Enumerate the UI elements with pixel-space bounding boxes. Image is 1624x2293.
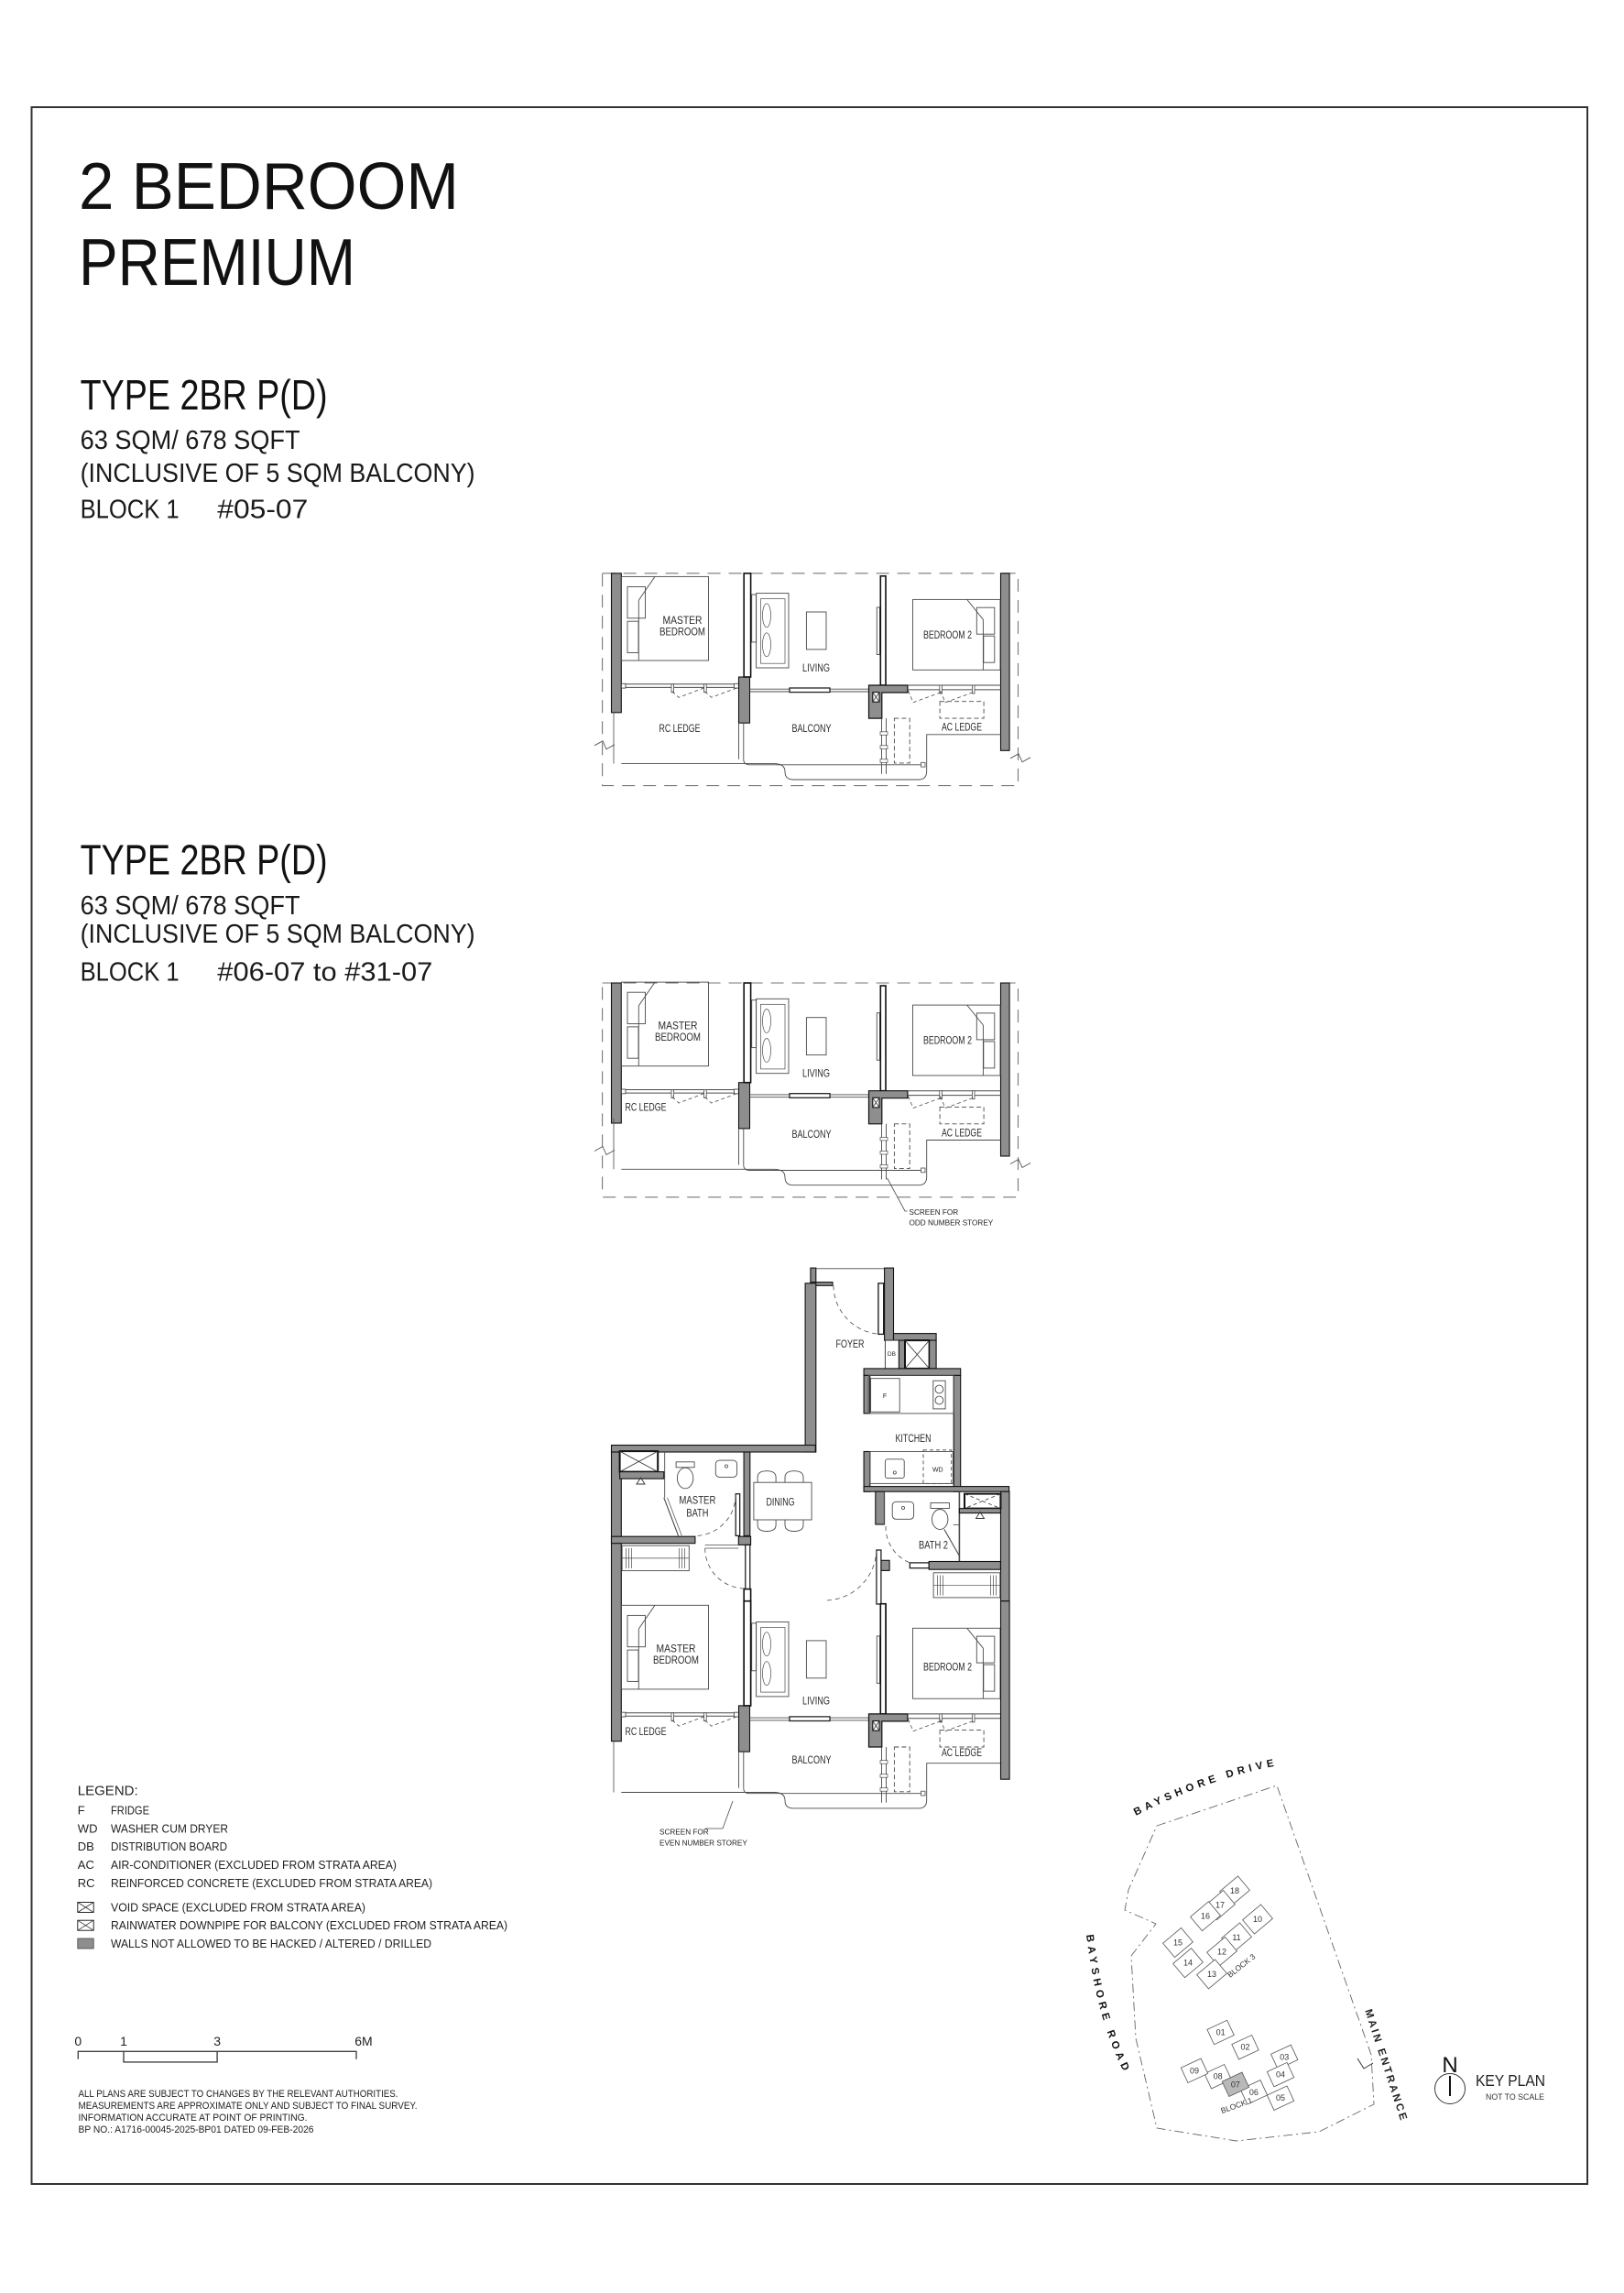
svg-text:63 SQM/ 678 SQFT: 63 SQM/ 678 SQFT <box>81 891 300 921</box>
svg-text:2 BEDROOM: 2 BEDROOM <box>79 150 459 224</box>
svg-text:FRIDGE: FRIDGE <box>111 1803 149 1817</box>
svg-text:3: 3 <box>213 2034 221 2048</box>
svg-text:06: 06 <box>1249 2088 1259 2097</box>
svg-text:13: 13 <box>1207 1970 1216 1979</box>
svg-text:TYPE 2BR P(D): TYPE 2BR P(D) <box>81 371 328 419</box>
svg-text:AC LEDGE: AC LEDGE <box>942 1127 982 1140</box>
svg-text:TYPE 2BR P(D): TYPE 2BR P(D) <box>81 835 328 883</box>
svg-text:AC: AC <box>78 1858 94 1872</box>
svg-text:11: 11 <box>1232 1933 1240 1942</box>
svg-text:10: 10 <box>1253 1915 1262 1924</box>
svg-text:BALCONY: BALCONY <box>792 1128 832 1141</box>
svg-text:ODD NUMBER STOREY: ODD NUMBER STOREY <box>910 1219 994 1228</box>
svg-text:MEASUREMENTS ARE APPROXIMATE O: MEASUREMENTS ARE APPROXIMATE ONLY AND SU… <box>79 2101 418 2112</box>
svg-text:12: 12 <box>1217 1948 1226 1957</box>
svg-text:REINFORCED CONCRETE (EXCLUDED: REINFORCED CONCRETE (EXCLUDED FROM STRAT… <box>111 1876 432 1890</box>
svg-text:DB: DB <box>78 1840 94 1853</box>
svg-text:LIVING: LIVING <box>802 1695 830 1708</box>
svg-text:(INCLUSIVE OF 5 SQM BALCONY): (INCLUSIVE OF 5 SQM BALCONY) <box>81 459 475 488</box>
svg-text:BEDROOM 2: BEDROOM 2 <box>923 1661 972 1674</box>
svg-text:BEDROOM: BEDROOM <box>659 625 705 638</box>
svg-text:08: 08 <box>1214 2072 1223 2081</box>
svg-text:BEDROOM: BEDROOM <box>655 1031 701 1043</box>
svg-text:03: 03 <box>1280 2052 1289 2061</box>
svg-text:WD: WD <box>78 1821 98 1835</box>
svg-text:01: 01 <box>1216 2028 1226 2037</box>
svg-text:1: 1 <box>120 2034 127 2048</box>
svg-text:BLOCK 1: BLOCK 1 <box>81 958 180 988</box>
svg-text:VOID SPACE (EXCLUDED FROM STRA: VOID SPACE (EXCLUDED FROM STRATA AREA) <box>111 1901 365 1915</box>
svg-text:BALCONY: BALCONY <box>792 722 832 735</box>
svg-text:WALLS NOT ALLOWED TO BE HACKED: WALLS NOT ALLOWED TO BE HACKED / ALTERED… <box>111 1937 431 1950</box>
svg-text:AC LEDGE: AC LEDGE <box>942 1746 982 1759</box>
svg-text:ALL PLANS ARE SUBJECT TO CHANG: ALL PLANS ARE SUBJECT TO CHANGES BY THE … <box>79 2089 398 2100</box>
svg-text:KITCHEN: KITCHEN <box>896 1432 932 1445</box>
svg-text:SCREEN FOR: SCREEN FOR <box>659 1829 709 1837</box>
svg-text:02: 02 <box>1240 2043 1249 2052</box>
svg-text:17: 17 <box>1215 1901 1225 1910</box>
svg-text:AC LEDGE: AC LEDGE <box>942 721 982 734</box>
svg-text:DINING: DINING <box>767 1496 795 1509</box>
svg-text:63 SQM/ 678 SQFT: 63 SQM/ 678 SQFT <box>81 426 300 455</box>
svg-text:NOT TO SCALE: NOT TO SCALE <box>1486 2092 1544 2102</box>
svg-text:DISTRIBUTION BOARD: DISTRIBUTION BOARD <box>111 1840 227 1853</box>
svg-text:14: 14 <box>1183 1959 1193 1968</box>
svg-text:BATH 2: BATH 2 <box>919 1539 948 1552</box>
svg-text:04: 04 <box>1276 2070 1285 2080</box>
svg-text:LIVING: LIVING <box>802 661 830 674</box>
svg-text:WD: WD <box>932 1468 943 1474</box>
svg-text:EVEN NUMBER STOREY: EVEN NUMBER STOREY <box>659 1840 747 1848</box>
svg-text:0: 0 <box>74 2034 82 2048</box>
svg-text:LEGEND:: LEGEND: <box>78 1783 138 1798</box>
svg-text:PREMIUM: PREMIUM <box>79 226 355 300</box>
svg-text:BALCONY: BALCONY <box>792 1753 832 1766</box>
svg-text:AIR-CONDITIONER (EXCLUDED FROM: AIR-CONDITIONER (EXCLUDED FROM STRATA AR… <box>111 1858 397 1872</box>
svg-text:07: 07 <box>1231 2080 1240 2089</box>
svg-text:BEDROOM 2: BEDROOM 2 <box>923 1034 972 1047</box>
svg-text:RAINWATER DOWNPIPE FOR BALCONY: RAINWATER DOWNPIPE FOR BALCONY (EXCLUDED… <box>111 1918 507 1932</box>
svg-text:09: 09 <box>1190 2066 1199 2075</box>
svg-text:MASTER: MASTER <box>679 1494 715 1507</box>
svg-text:KEY PLAN: KEY PLAN <box>1476 2071 1545 2090</box>
svg-text:15: 15 <box>1173 1938 1183 1948</box>
svg-text:BP NO.: A1716-00045-2025-BP01: BP NO.: A1716-00045-2025-BP01 DATED 09-F… <box>79 2124 314 2135</box>
svg-text:BEDROOM 2: BEDROOM 2 <box>923 628 972 641</box>
svg-text:6M: 6M <box>354 2034 372 2048</box>
svg-text:LIVING: LIVING <box>802 1067 830 1080</box>
svg-text:SCREEN FOR: SCREEN FOR <box>910 1208 959 1217</box>
svg-text:#06-07 to #31-07: #06-07 to #31-07 <box>217 958 432 988</box>
svg-text:FOYER: FOYER <box>836 1338 865 1350</box>
svg-text:BLOCK 1: BLOCK 1 <box>81 496 180 525</box>
svg-text:RC LEDGE: RC LEDGE <box>626 1725 667 1738</box>
svg-text:#05-07: #05-07 <box>217 496 308 525</box>
svg-text:16: 16 <box>1201 1912 1210 1921</box>
svg-text:F: F <box>78 1803 85 1817</box>
svg-text:BEDROOM: BEDROOM <box>653 1654 699 1666</box>
svg-text:INFORMATION ACCURATE AT POINT: INFORMATION ACCURATE AT POINT OF PRINTIN… <box>79 2113 308 2124</box>
svg-text:N: N <box>1442 2053 1457 2078</box>
svg-text:(INCLUSIVE OF 5 SQM BALCONY): (INCLUSIVE OF 5 SQM BALCONY) <box>81 920 475 949</box>
svg-text:WASHER CUM DRYER: WASHER CUM DRYER <box>111 1821 228 1835</box>
svg-text:RC LEDGE: RC LEDGE <box>626 1101 667 1114</box>
svg-text:BATH: BATH <box>686 1507 708 1520</box>
svg-text:F: F <box>883 1393 887 1400</box>
svg-text:05: 05 <box>1276 2093 1285 2102</box>
svg-text:RC LEDGE: RC LEDGE <box>659 722 701 735</box>
svg-text:DB: DB <box>888 1351 896 1358</box>
svg-text:RC: RC <box>78 1876 95 1890</box>
svg-text:18: 18 <box>1230 1886 1239 1895</box>
